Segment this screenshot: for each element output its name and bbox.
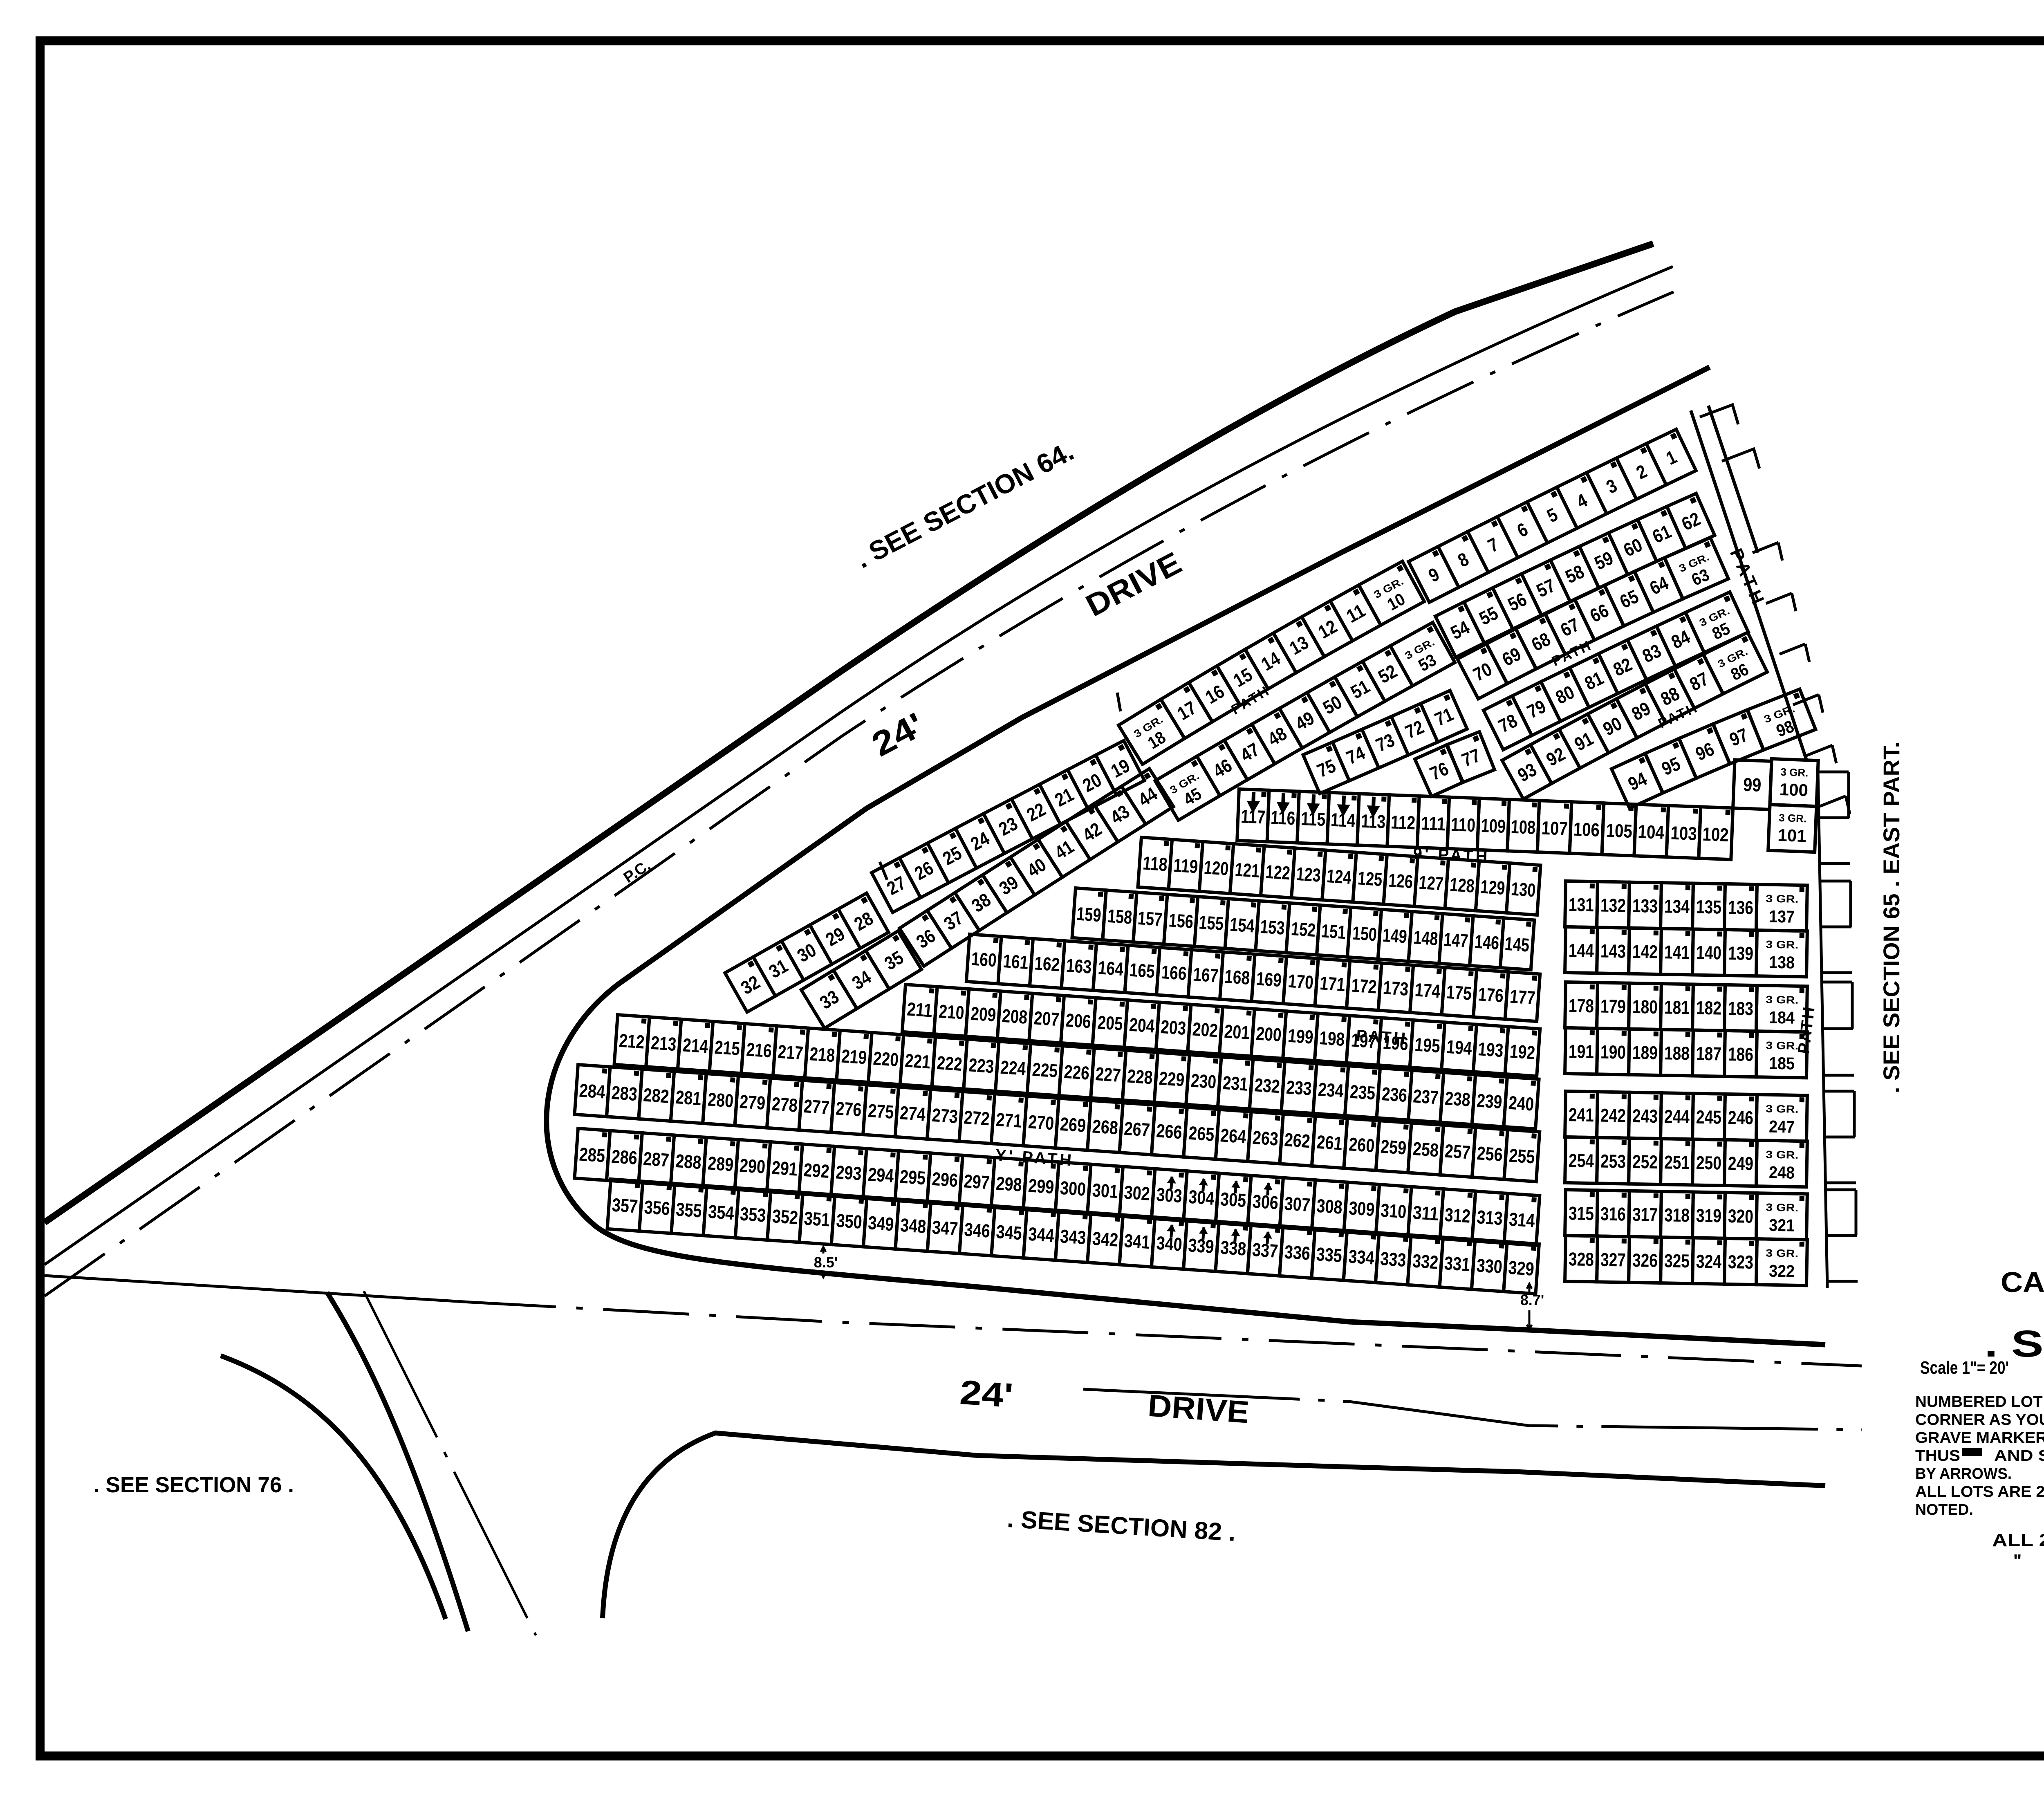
svg-text:112: 112 xyxy=(1390,811,1416,833)
svg-text:277: 277 xyxy=(803,1095,830,1118)
svg-text:320: 320 xyxy=(1728,1205,1753,1227)
svg-text:99: 99 xyxy=(1743,774,1762,796)
svg-text:3 GR.: 3 GR. xyxy=(1766,1247,1799,1260)
svg-text:158: 158 xyxy=(1107,905,1133,928)
svg-text:160: 160 xyxy=(970,948,997,971)
svg-text:146: 146 xyxy=(1474,931,1499,953)
svg-text:163: 163 xyxy=(1065,955,1092,978)
svg-text:222: 222 xyxy=(936,1052,963,1075)
svg-text:177: 177 xyxy=(1509,986,1536,1009)
svg-text:300: 300 xyxy=(1059,1177,1086,1200)
svg-text:242: 242 xyxy=(1600,1104,1626,1126)
svg-text:247: 247 xyxy=(1769,1117,1795,1137)
svg-text:108: 108 xyxy=(1511,816,1536,838)
svg-text:185: 185 xyxy=(1769,1054,1795,1073)
svg-text:133: 133 xyxy=(1632,895,1658,917)
svg-text:350: 350 xyxy=(836,1210,863,1233)
svg-text:188: 188 xyxy=(1664,1042,1690,1064)
svg-text:323: 323 xyxy=(1728,1251,1753,1273)
svg-text:306: 306 xyxy=(1252,1191,1279,1213)
svg-text:169: 169 xyxy=(1255,968,1282,991)
svg-text:257: 257 xyxy=(1444,1140,1471,1163)
svg-text:213: 213 xyxy=(650,1032,677,1055)
svg-text:106: 106 xyxy=(1573,818,1600,840)
svg-text:254: 254 xyxy=(1569,1150,1594,1171)
svg-text:302: 302 xyxy=(1123,1182,1150,1204)
svg-text:329: 329 xyxy=(1508,1257,1535,1280)
svg-text:154: 154 xyxy=(1229,914,1255,937)
svg-text:354: 354 xyxy=(708,1201,735,1224)
svg-text:276: 276 xyxy=(835,1097,862,1120)
svg-text:183: 183 xyxy=(1728,998,1753,1019)
svg-text:273: 273 xyxy=(931,1104,958,1127)
svg-text:THUS: THUS xyxy=(1915,1447,1960,1464)
svg-text:225: 225 xyxy=(1031,1058,1058,1081)
svg-text:353: 353 xyxy=(740,1203,766,1226)
svg-text:147: 147 xyxy=(1443,928,1469,951)
svg-text:352: 352 xyxy=(771,1205,798,1228)
svg-text:ALL 2 GRAVE LOTS ARE 6'x: ALL 2 GRAVE LOTS ARE 6'x 9' xyxy=(1992,1530,2044,1550)
svg-text:176: 176 xyxy=(1477,983,1504,1006)
svg-text:152: 152 xyxy=(1291,918,1316,941)
svg-text:265: 265 xyxy=(1188,1122,1215,1145)
svg-text:206: 206 xyxy=(1065,1009,1091,1032)
svg-text:238: 238 xyxy=(1444,1088,1471,1110)
svg-text:293: 293 xyxy=(835,1161,862,1184)
svg-text:279: 279 xyxy=(739,1091,766,1114)
svg-text:244: 244 xyxy=(1664,1106,1690,1127)
svg-text:3 GR.: 3 GR. xyxy=(1766,1201,1799,1214)
svg-text:346: 346 xyxy=(964,1219,991,1242)
svg-text:175: 175 xyxy=(1446,981,1472,1004)
svg-text:100: 100 xyxy=(1779,780,1809,800)
svg-text:138: 138 xyxy=(1769,953,1795,972)
svg-text:342: 342 xyxy=(1091,1228,1118,1251)
svg-text:194: 194 xyxy=(1446,1036,1473,1059)
svg-text:324: 324 xyxy=(1696,1251,1722,1272)
svg-text:148: 148 xyxy=(1413,926,1439,949)
svg-text:330: 330 xyxy=(1476,1254,1503,1277)
svg-text:355: 355 xyxy=(675,1198,702,1221)
svg-text:295: 295 xyxy=(899,1166,926,1189)
svg-text:357: 357 xyxy=(611,1194,638,1217)
svg-text:102: 102 xyxy=(1702,823,1729,845)
svg-text:212: 212 xyxy=(619,1029,645,1052)
svg-text:168: 168 xyxy=(1224,966,1251,989)
svg-text:3 GR.: 3 GR. xyxy=(1766,993,1799,1006)
svg-text:235: 235 xyxy=(1349,1081,1376,1103)
svg-text:144: 144 xyxy=(1569,940,1594,961)
svg-text:205: 205 xyxy=(1097,1011,1123,1034)
svg-text:204: 204 xyxy=(1129,1014,1156,1036)
svg-text:241: 241 xyxy=(1569,1104,1594,1126)
svg-text:105: 105 xyxy=(1606,820,1633,842)
svg-text:270: 270 xyxy=(1028,1111,1055,1134)
svg-text:180: 180 xyxy=(1632,996,1658,1018)
svg-text:130: 130 xyxy=(1511,878,1536,901)
svg-text:24': 24' xyxy=(959,1373,1014,1415)
svg-text:331: 331 xyxy=(1443,1252,1470,1275)
svg-text:237: 237 xyxy=(1412,1085,1439,1108)
svg-text:125: 125 xyxy=(1357,867,1383,890)
svg-text:214: 214 xyxy=(682,1034,709,1057)
svg-text:181: 181 xyxy=(1664,996,1690,1018)
svg-text:226: 226 xyxy=(1063,1061,1090,1084)
svg-text:263: 263 xyxy=(1252,1127,1279,1150)
svg-text:179: 179 xyxy=(1600,995,1626,1017)
svg-text:141: 141 xyxy=(1664,941,1690,963)
svg-text:132: 132 xyxy=(1600,894,1626,916)
svg-text:348: 348 xyxy=(900,1214,927,1237)
svg-text:199: 199 xyxy=(1287,1025,1314,1048)
svg-text:218: 218 xyxy=(809,1043,836,1066)
svg-text:267: 267 xyxy=(1123,1118,1150,1141)
svg-text:289: 289 xyxy=(707,1152,734,1175)
svg-text:192: 192 xyxy=(1509,1041,1535,1063)
svg-text:246: 246 xyxy=(1728,1107,1753,1128)
svg-text:284: 284 xyxy=(578,1079,606,1102)
svg-text:127: 127 xyxy=(1418,872,1444,895)
svg-text:193: 193 xyxy=(1477,1038,1504,1061)
svg-text:165: 165 xyxy=(1129,959,1155,982)
svg-text:316: 316 xyxy=(1600,1203,1626,1224)
svg-text:137: 137 xyxy=(1769,907,1795,926)
svg-text:255: 255 xyxy=(1508,1144,1535,1167)
svg-text:266: 266 xyxy=(1156,1120,1183,1143)
svg-text:CALVARY CEMETERY: CALVARY CEMETERY xyxy=(2001,1266,2044,1298)
svg-text:151: 151 xyxy=(1320,920,1346,943)
svg-text:217: 217 xyxy=(777,1041,804,1064)
svg-text:281: 281 xyxy=(675,1086,702,1109)
svg-text:318: 318 xyxy=(1664,1204,1690,1226)
svg-text:341: 341 xyxy=(1123,1230,1150,1253)
svg-text:296: 296 xyxy=(931,1168,958,1191)
svg-text:124: 124 xyxy=(1326,865,1352,888)
svg-text:253: 253 xyxy=(1600,1150,1626,1172)
svg-text:166: 166 xyxy=(1161,961,1187,984)
svg-text:248: 248 xyxy=(1769,1163,1795,1182)
svg-text:182: 182 xyxy=(1696,997,1722,1019)
svg-text:170: 170 xyxy=(1287,970,1314,993)
svg-text:103: 103 xyxy=(1670,822,1697,844)
svg-text:ALL LOTS ARE 2 GRAVE LOTS EXCE: ALL LOTS ARE 2 GRAVE LOTS EXCEPT WHERE O… xyxy=(1915,1483,2044,1500)
svg-text:173: 173 xyxy=(1383,977,1409,1000)
svg-text:264: 264 xyxy=(1220,1124,1247,1147)
svg-text:107: 107 xyxy=(1541,817,1568,839)
svg-text:191: 191 xyxy=(1569,1041,1594,1062)
svg-text:356: 356 xyxy=(643,1196,670,1219)
svg-text:3 GR.: 3 GR. xyxy=(1766,1148,1799,1161)
svg-text:272: 272 xyxy=(963,1106,990,1129)
svg-text:209: 209 xyxy=(970,1002,997,1025)
svg-text:333: 333 xyxy=(1380,1248,1407,1271)
svg-text:101: 101 xyxy=(1777,825,1807,846)
svg-text:174: 174 xyxy=(1414,979,1441,1002)
svg-text:325: 325 xyxy=(1664,1250,1690,1272)
svg-text:NOTED.: NOTED. xyxy=(1915,1501,1973,1518)
svg-text:3 GR.: 3 GR. xyxy=(1766,1103,1799,1115)
svg-text:": " xyxy=(2013,1551,2022,1571)
svg-text:343: 343 xyxy=(1060,1225,1087,1248)
svg-text:110: 110 xyxy=(1450,814,1476,836)
svg-text:234: 234 xyxy=(1318,1079,1345,1101)
svg-text:251: 251 xyxy=(1664,1151,1690,1173)
svg-text:309: 309 xyxy=(1348,1197,1375,1220)
svg-text:211: 211 xyxy=(906,998,933,1021)
svg-text:292: 292 xyxy=(803,1159,830,1182)
svg-text:294: 294 xyxy=(867,1164,895,1186)
svg-text:339: 339 xyxy=(1188,1234,1215,1257)
svg-text:189: 189 xyxy=(1632,1042,1658,1063)
svg-text:136: 136 xyxy=(1728,897,1753,918)
svg-text:299: 299 xyxy=(1028,1175,1055,1198)
svg-text:250: 250 xyxy=(1696,1152,1722,1174)
svg-text:109: 109 xyxy=(1481,815,1506,837)
svg-text:312: 312 xyxy=(1444,1204,1471,1227)
svg-text:122: 122 xyxy=(1265,861,1291,884)
svg-text:287: 287 xyxy=(643,1148,670,1171)
svg-text:321: 321 xyxy=(1769,1215,1795,1235)
svg-text:139: 139 xyxy=(1728,942,1753,964)
svg-text:271: 271 xyxy=(995,1109,1022,1132)
svg-text:3 GR.: 3 GR. xyxy=(1766,938,1799,951)
svg-text:317: 317 xyxy=(1632,1204,1658,1225)
svg-text:178: 178 xyxy=(1569,995,1594,1016)
svg-text:121: 121 xyxy=(1234,859,1260,881)
svg-text:307: 307 xyxy=(1284,1193,1311,1215)
svg-text:336: 336 xyxy=(1284,1241,1311,1264)
svg-text:280: 280 xyxy=(707,1088,734,1111)
svg-text:256: 256 xyxy=(1476,1142,1503,1165)
svg-text:210: 210 xyxy=(938,1000,965,1023)
svg-text:187: 187 xyxy=(1696,1043,1722,1065)
svg-text:167: 167 xyxy=(1192,963,1219,986)
svg-text:NUMBERED LOT MARKERS ARE LOCAT: NUMBERED LOT MARKERS ARE LOCATED IN UPPE… xyxy=(1915,1393,2044,1411)
svg-text:162: 162 xyxy=(1034,952,1060,975)
svg-text:285: 285 xyxy=(578,1143,605,1166)
svg-text:172: 172 xyxy=(1351,974,1377,997)
svg-text:202: 202 xyxy=(1192,1018,1218,1041)
svg-text:233: 233 xyxy=(1286,1076,1312,1099)
svg-text:8.5': 8.5' xyxy=(814,1254,838,1271)
svg-text:245: 245 xyxy=(1696,1106,1722,1128)
svg-text:259: 259 xyxy=(1380,1136,1407,1159)
svg-text:319: 319 xyxy=(1696,1205,1722,1227)
svg-text:313: 313 xyxy=(1476,1206,1503,1229)
svg-text:328: 328 xyxy=(1569,1248,1594,1270)
svg-text:290: 290 xyxy=(739,1155,766,1177)
svg-text:349: 349 xyxy=(867,1212,894,1235)
svg-text:291: 291 xyxy=(771,1157,798,1180)
svg-text:345: 345 xyxy=(995,1221,1022,1244)
svg-text:297: 297 xyxy=(963,1170,990,1193)
svg-text:203: 203 xyxy=(1160,1016,1187,1039)
svg-text:134: 134 xyxy=(1664,895,1690,917)
svg-text:347: 347 xyxy=(931,1216,958,1239)
svg-text:338: 338 xyxy=(1220,1237,1247,1260)
svg-text:301: 301 xyxy=(1091,1179,1118,1202)
svg-text:322: 322 xyxy=(1769,1261,1795,1281)
svg-text:269: 269 xyxy=(1059,1113,1086,1136)
svg-text:PATH: PATH xyxy=(1356,1027,1408,1048)
svg-text:229: 229 xyxy=(1159,1067,1185,1090)
svg-text:262: 262 xyxy=(1284,1129,1311,1152)
svg-text:274: 274 xyxy=(899,1102,926,1125)
svg-text:142: 142 xyxy=(1632,941,1658,962)
svg-text:129: 129 xyxy=(1480,876,1506,899)
svg-text:221: 221 xyxy=(904,1050,931,1072)
svg-text:190: 190 xyxy=(1600,1041,1626,1063)
svg-text:278: 278 xyxy=(771,1093,798,1116)
svg-text:120: 120 xyxy=(1203,857,1229,879)
svg-text:Scale 1"= 20': Scale 1"= 20' xyxy=(1920,1358,2009,1378)
svg-text:311: 311 xyxy=(1412,1202,1439,1224)
svg-text:. SEE SECTION 76 .: . SEE SECTION 76 . xyxy=(94,1473,294,1497)
svg-text:275: 275 xyxy=(867,1100,894,1123)
svg-text:261: 261 xyxy=(1316,1131,1343,1154)
svg-text:3 GR.: 3 GR. xyxy=(1766,893,1799,905)
svg-text:143: 143 xyxy=(1600,940,1626,962)
svg-text:AND SHALL FACE IN DIRECTION S: AND SHALL FACE IN DIRECTION SHOWN xyxy=(1994,1447,2044,1464)
svg-text:240: 240 xyxy=(1508,1092,1535,1115)
svg-text:327: 327 xyxy=(1600,1249,1626,1270)
svg-text:230: 230 xyxy=(1190,1070,1217,1092)
svg-text:239: 239 xyxy=(1476,1090,1503,1112)
svg-text:227: 227 xyxy=(1095,1063,1121,1086)
svg-text:GRAVE MARKERS ARE TO BE LOCAT: GRAVE MARKERS ARE TO BE LOCATED AS INDIC… xyxy=(1915,1429,2044,1446)
svg-text:159: 159 xyxy=(1076,903,1102,926)
svg-text:200: 200 xyxy=(1255,1023,1282,1045)
svg-text:126: 126 xyxy=(1387,869,1413,892)
svg-text:3 GR.: 3 GR. xyxy=(1780,766,1809,779)
svg-text:131: 131 xyxy=(1569,894,1594,915)
svg-text:195: 195 xyxy=(1414,1034,1441,1056)
svg-text:232: 232 xyxy=(1254,1074,1280,1097)
svg-text:303: 303 xyxy=(1156,1184,1183,1206)
svg-text:337: 337 xyxy=(1252,1239,1279,1262)
svg-text:215: 215 xyxy=(714,1036,740,1059)
svg-text:156: 156 xyxy=(1168,909,1194,932)
svg-text:. SEE SECTION 65 . EAST PAR: . SEE SECTION 65 . EAST PART. xyxy=(1878,742,1904,1093)
svg-text:315: 315 xyxy=(1569,1202,1594,1224)
svg-text:310: 310 xyxy=(1380,1200,1407,1222)
svg-text:252: 252 xyxy=(1632,1151,1658,1173)
svg-text:8.7': 8.7' xyxy=(1520,1292,1544,1308)
svg-text:304: 304 xyxy=(1188,1186,1215,1209)
svg-text:308: 308 xyxy=(1316,1195,1343,1218)
svg-text:314: 314 xyxy=(1508,1208,1536,1231)
svg-text:344: 344 xyxy=(1028,1223,1055,1246)
svg-text:305: 305 xyxy=(1220,1188,1247,1211)
svg-text:3 GR.: 3 GR. xyxy=(1766,1039,1799,1052)
svg-text:335: 335 xyxy=(1316,1243,1342,1266)
svg-text:164: 164 xyxy=(1097,957,1124,980)
svg-text:258: 258 xyxy=(1412,1138,1439,1161)
svg-text:231: 231 xyxy=(1222,1072,1248,1095)
svg-text:150: 150 xyxy=(1351,922,1377,945)
svg-text:228: 228 xyxy=(1127,1065,1153,1088)
svg-text:157: 157 xyxy=(1137,907,1163,930)
svg-text:149: 149 xyxy=(1382,924,1407,947)
svg-text:118: 118 xyxy=(1142,852,1168,875)
svg-text:184: 184 xyxy=(1769,1008,1795,1027)
svg-text:186: 186 xyxy=(1728,1043,1753,1065)
svg-text:198: 198 xyxy=(1319,1027,1345,1050)
svg-text:111: 111 xyxy=(1421,812,1446,834)
svg-text:282: 282 xyxy=(643,1084,670,1107)
svg-text:236: 236 xyxy=(1381,1083,1407,1106)
svg-text:CORNER AS YOU FACE THE LOT AND: CORNER AS YOU FACE THE LOT AND ARE INDIC… xyxy=(1915,1411,2044,1428)
svg-text:119: 119 xyxy=(1173,854,1199,877)
svg-text:DRIVE: DRIVE xyxy=(1147,1388,1250,1430)
svg-text:140: 140 xyxy=(1696,942,1722,964)
svg-text:260: 260 xyxy=(1348,1133,1375,1156)
svg-text:123: 123 xyxy=(1295,863,1321,886)
svg-text:286: 286 xyxy=(611,1146,638,1168)
svg-text:288: 288 xyxy=(675,1150,702,1173)
svg-text:268: 268 xyxy=(1091,1115,1118,1138)
svg-text:224: 224 xyxy=(1000,1056,1027,1079)
svg-text:334: 334 xyxy=(1348,1245,1375,1268)
svg-text:104: 104 xyxy=(1638,821,1665,843)
svg-text:249: 249 xyxy=(1728,1153,1753,1174)
svg-text:145: 145 xyxy=(1504,933,1530,956)
svg-text:223: 223 xyxy=(968,1054,995,1077)
svg-text:201: 201 xyxy=(1224,1020,1250,1043)
svg-text:BY ARROWS.: BY ARROWS. xyxy=(1915,1465,2012,1482)
svg-text:216: 216 xyxy=(746,1038,772,1061)
svg-text:283: 283 xyxy=(611,1082,638,1105)
svg-text:207: 207 xyxy=(1033,1007,1060,1030)
svg-text:208: 208 xyxy=(1001,1005,1028,1028)
svg-text:243: 243 xyxy=(1632,1105,1658,1127)
svg-text:153: 153 xyxy=(1260,916,1285,939)
svg-text:128: 128 xyxy=(1449,874,1475,897)
svg-text:340: 340 xyxy=(1156,1232,1183,1255)
svg-text:351: 351 xyxy=(803,1207,830,1230)
svg-text:171: 171 xyxy=(1319,972,1346,995)
svg-text:332: 332 xyxy=(1412,1250,1439,1273)
svg-text:135: 135 xyxy=(1696,896,1722,918)
svg-text:161: 161 xyxy=(1002,950,1029,973)
svg-text:220: 220 xyxy=(872,1047,899,1070)
svg-text:298: 298 xyxy=(995,1173,1022,1195)
svg-text:326: 326 xyxy=(1632,1249,1658,1271)
svg-text:3 GR.: 3 GR. xyxy=(1779,812,1807,825)
svg-text:155: 155 xyxy=(1198,911,1224,934)
svg-text:219: 219 xyxy=(841,1045,867,1068)
